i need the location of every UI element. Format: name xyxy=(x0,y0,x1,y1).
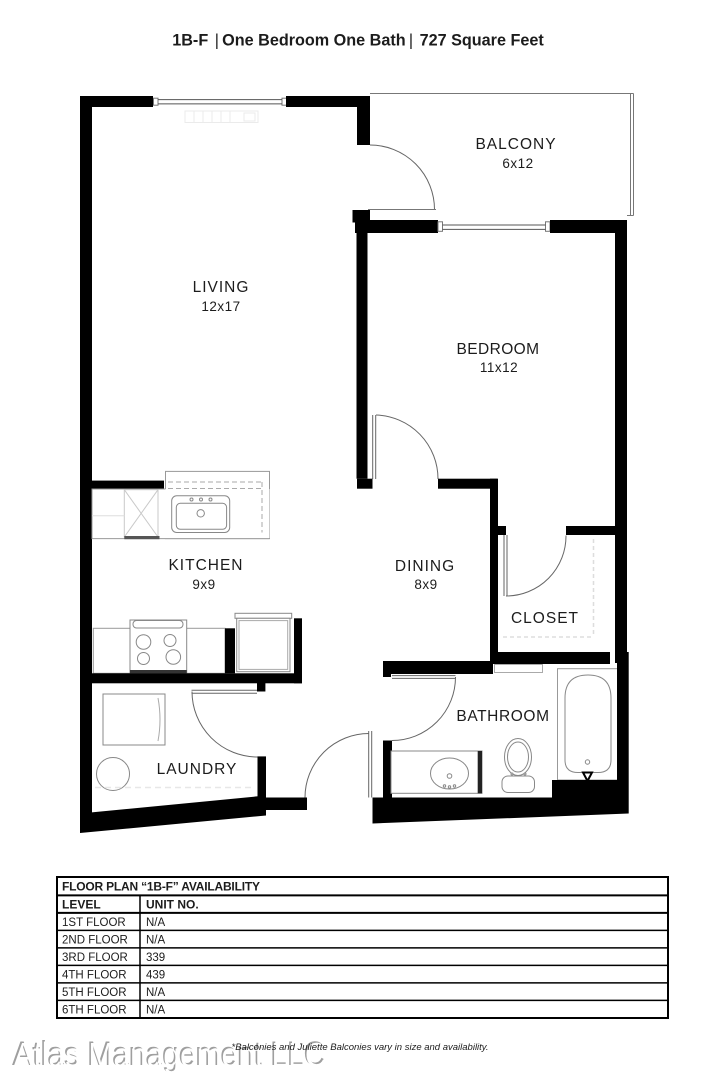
svg-text:N/A: N/A xyxy=(146,987,166,999)
svg-text:CLOSET: CLOSET xyxy=(511,610,579,627)
svg-text:DINING: DINING xyxy=(395,558,455,575)
svg-text:1ST FLOOR: 1ST FLOOR xyxy=(62,917,126,929)
svg-text:BALCONY: BALCONY xyxy=(475,136,556,153)
svg-text:N/A: N/A xyxy=(146,935,166,947)
svg-text:BEDROOM: BEDROOM xyxy=(457,341,540,358)
svg-text:LEVEL: LEVEL xyxy=(62,898,101,912)
svg-text:N/A: N/A xyxy=(146,917,166,929)
svg-text:LAUNDRY: LAUNDRY xyxy=(157,761,238,778)
svg-text:6TH FLOOR: 6TH FLOOR xyxy=(62,1005,127,1017)
svg-text:LIVING: LIVING xyxy=(193,279,250,296)
svg-text:8x9: 8x9 xyxy=(414,577,437,592)
svg-text:4TH FLOOR: 4TH FLOOR xyxy=(62,970,127,982)
svg-text:3RD FLOOR: 3RD FLOOR xyxy=(62,952,128,964)
svg-text:12x17: 12x17 xyxy=(201,299,240,314)
svg-text:1B-F | One Bedroom One Bath |: 1B-F | One Bedroom One Bath | 727 Square… xyxy=(172,32,544,50)
svg-text:9x9: 9x9 xyxy=(192,577,215,592)
svg-text:11x12: 11x12 xyxy=(480,360,518,375)
svg-text:KITCHEN: KITCHEN xyxy=(168,557,243,574)
svg-text:UNIT NO.: UNIT NO. xyxy=(146,898,199,912)
svg-text:2ND FLOOR: 2ND FLOOR xyxy=(62,935,128,947)
svg-text:439: 439 xyxy=(146,970,165,982)
svg-text:FLOOR PLAN “1B-F” AVAILABILITY: FLOOR PLAN “1B-F” AVAILABILITY xyxy=(62,880,260,894)
svg-text:*Balconies and Juliette Balcon: *Balconies and Juliette Balconies vary i… xyxy=(232,1042,489,1053)
svg-text:339: 339 xyxy=(146,952,165,964)
svg-text:N/A: N/A xyxy=(146,1005,166,1017)
svg-text:5TH FLOOR: 5TH FLOOR xyxy=(62,987,127,999)
svg-text:BATHROOM: BATHROOM xyxy=(456,708,549,725)
svg-text:6x12: 6x12 xyxy=(502,156,533,171)
